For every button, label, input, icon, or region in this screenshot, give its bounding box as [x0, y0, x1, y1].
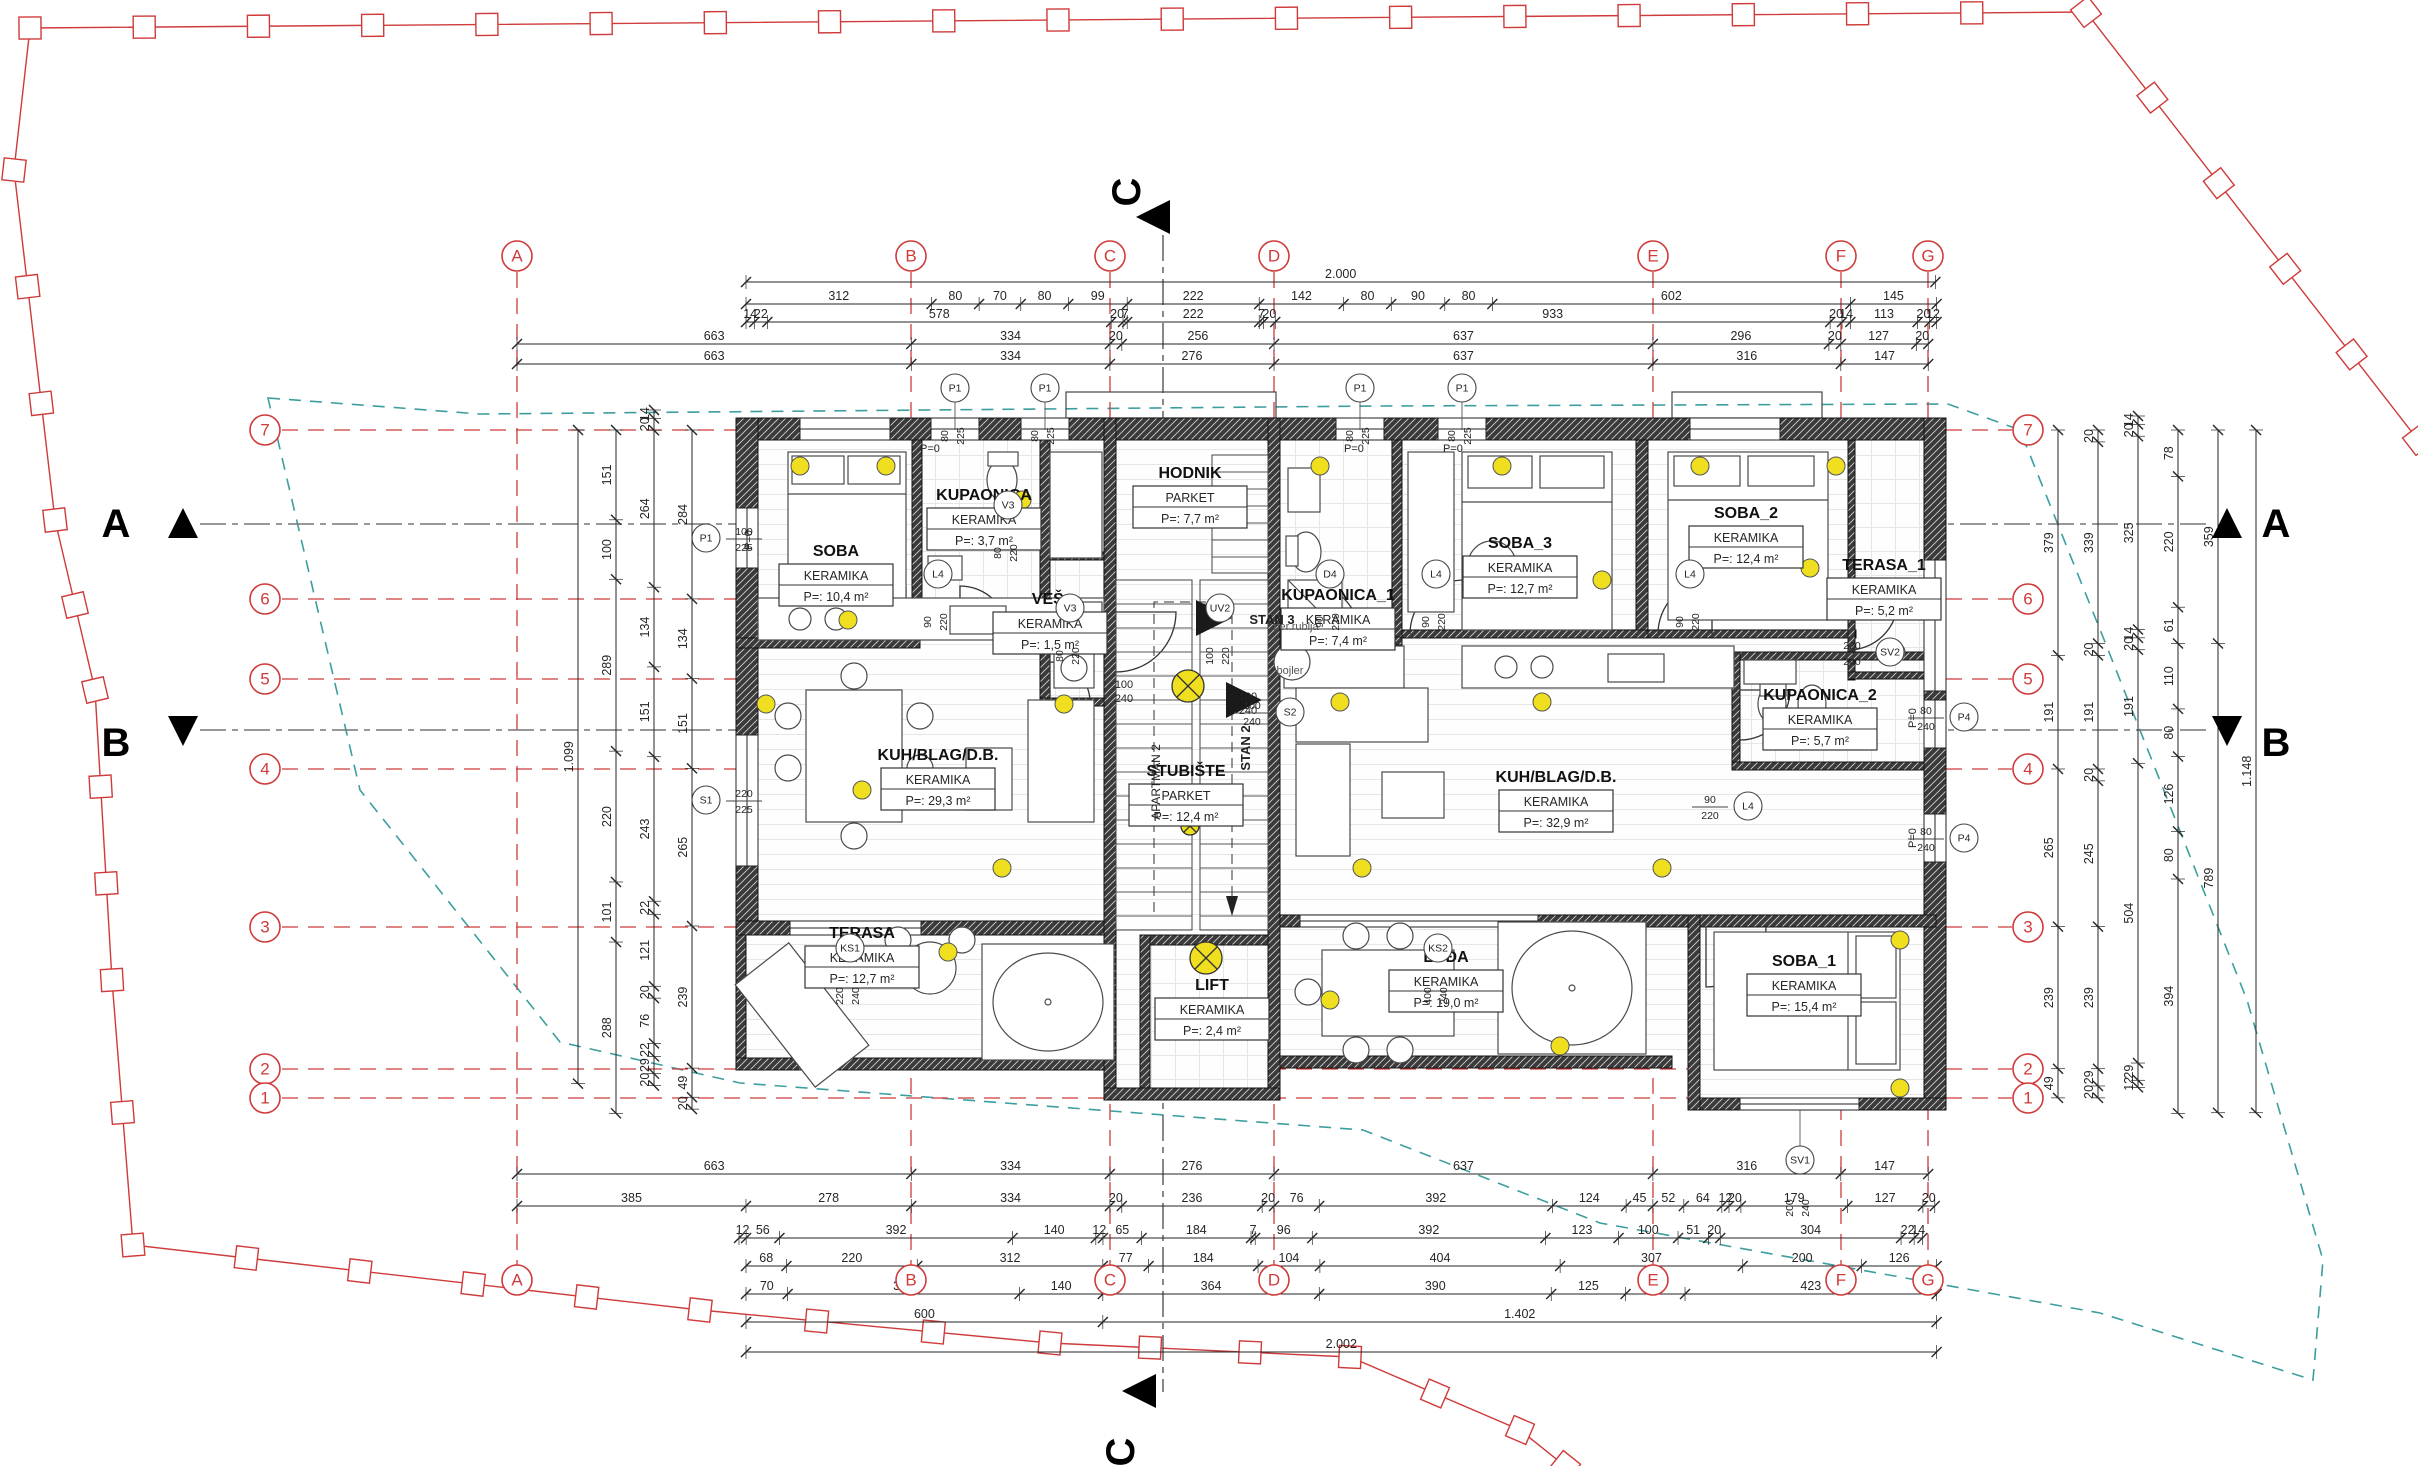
dim-value: 7	[1250, 1223, 1257, 1237]
dim-value: 76	[638, 1014, 652, 1028]
room-label-kupaonica-2: KUPAONICA_2KERAMIKAP=: 5,7 m²	[1763, 687, 1877, 750]
tag-dim: 220	[834, 987, 846, 1005]
room-finish: KERAMIKA	[906, 773, 971, 787]
dim-value: 392	[1425, 1191, 1446, 1205]
dim-value: 334	[1000, 1159, 1021, 1173]
grid-marker-label: A	[511, 247, 523, 266]
dim-value: 578	[929, 307, 950, 321]
furniture-item	[1387, 923, 1413, 949]
room-label-terasa-1: TERASA_1KERAMIKAP=: 5,2 m²	[1827, 557, 1941, 620]
fence-post	[461, 1272, 485, 1296]
dim-value: 423	[1800, 1279, 1821, 1293]
ceiling-light	[993, 859, 1011, 877]
dim-value: 334	[1000, 1191, 1021, 1205]
grid-marker-label: 1	[2023, 1089, 2032, 1108]
tag-dim: 225	[1462, 427, 1474, 445]
dim-value: 104	[1279, 1251, 1300, 1265]
dim-value: 20	[1922, 1191, 1936, 1205]
dim-value: 179	[1784, 1191, 1805, 1205]
tag-dim: 240	[1917, 842, 1935, 854]
grid-marker-7: 7	[250, 415, 280, 445]
furniture-item	[1387, 1037, 1413, 1063]
grid-marker-3: 3	[250, 912, 280, 942]
dim-value: 126	[2162, 783, 2176, 804]
tag-dim: 80	[1029, 430, 1041, 442]
dim-value: 325	[2122, 522, 2136, 543]
dim-value: 602	[1661, 289, 1682, 303]
grid-marker-label: 5	[2023, 670, 2032, 689]
dim-value: 80	[1361, 289, 1375, 303]
dim-value: 312	[1000, 1251, 1021, 1265]
dim-value: 339	[2082, 532, 2096, 553]
dim-value: 296	[1730, 329, 1751, 343]
tag-dim: 225	[1045, 427, 1057, 445]
dim-value: 77	[1119, 1251, 1133, 1265]
tag-id: SV2	[1880, 647, 1900, 659]
furniture-item	[988, 452, 1018, 466]
cross-lamp	[1190, 942, 1222, 974]
tag-id: KS1	[840, 943, 860, 955]
tag-id: L4	[932, 569, 944, 581]
grid-marker-label: C	[1104, 1271, 1116, 1290]
grid-marker-label: F	[1836, 1271, 1846, 1290]
tag-id: UV2	[1210, 603, 1231, 615]
tag-dim: 225	[955, 427, 967, 445]
fence-post	[15, 274, 39, 298]
grid-marker-label: E	[1647, 1271, 1658, 1290]
dim-value: 663	[704, 349, 725, 363]
dim-value: 80	[1462, 289, 1476, 303]
dim-value: 933	[1542, 307, 1563, 321]
grid-marker-label: 7	[2023, 421, 2032, 440]
fence-post	[1138, 1336, 1161, 1359]
dim-value: 284	[676, 504, 690, 525]
tag-dim: 100	[1243, 700, 1261, 712]
tag-dim: 80	[1920, 705, 1932, 717]
grid-marker-2: 2	[2013, 1054, 2043, 1084]
tag-dim: 220	[735, 788, 753, 800]
wall	[1636, 440, 1648, 638]
tag-dim: 220	[1070, 647, 1082, 665]
dim-value: 2.000	[1325, 267, 1356, 281]
dim-value: 127	[1868, 329, 1889, 343]
dim-value: 20	[1261, 1191, 1275, 1205]
ceiling-light	[1331, 693, 1349, 711]
grid-marker-F: F	[1826, 1265, 1856, 1295]
ceiling-light	[1493, 457, 1511, 475]
ceiling-light	[1353, 859, 1371, 877]
dim-value: 20	[2122, 637, 2136, 651]
cross-lamp	[1172, 670, 1204, 702]
room-name: KUH/BLAG/D.B.	[878, 747, 999, 764]
tag-dim: 80	[1446, 430, 1458, 442]
wall	[1104, 1088, 1280, 1100]
tag-id: L4	[1742, 801, 1754, 813]
room-finish: KERAMIKA	[1852, 583, 1917, 597]
tag-dim: 225	[735, 542, 753, 554]
ceiling-light	[1801, 559, 1819, 577]
room-area: P=: 12,7 m²	[830, 972, 895, 986]
tag-dim: 220	[1843, 640, 1861, 652]
dim-value: 20	[638, 417, 652, 431]
tag-dim: 80	[1344, 430, 1356, 442]
dim-value: 140	[1051, 1279, 1072, 1293]
ceiling-light	[1827, 457, 1845, 475]
dim-value: 100	[1638, 1223, 1659, 1237]
dim-value: 385	[621, 1191, 642, 1205]
dim-value: 151	[600, 464, 614, 485]
window	[736, 735, 758, 866]
fence-post	[688, 1298, 712, 1322]
tag-id: P1	[1354, 383, 1367, 395]
grid-marker-label: 5	[260, 670, 269, 689]
wall	[1848, 672, 1924, 679]
furniture-item	[1343, 1037, 1369, 1063]
room-finish: KERAMIKA	[1714, 531, 1779, 545]
furniture-item	[841, 823, 867, 849]
room-finish: KERAMIKA	[1788, 713, 1853, 727]
ceiling-light	[939, 943, 957, 961]
dim-value: 145	[1883, 289, 1904, 303]
grid-marker-label: G	[1921, 1271, 1934, 1290]
furniture-item	[1296, 688, 1428, 742]
annotation-text: 100	[1115, 679, 1133, 691]
furniture-item	[1045, 999, 1051, 1005]
room-area: P=: 29,3 m²	[906, 794, 971, 808]
grid-marker-A: A	[502, 1265, 532, 1295]
tag-dim: 80	[939, 430, 951, 442]
ceiling-light	[1891, 931, 1909, 949]
dim-value: 80	[2162, 726, 2176, 740]
grid-marker-label: A	[511, 1271, 523, 1290]
dim-value: 142	[1291, 289, 1312, 303]
furniture-item	[789, 608, 811, 630]
fence-post	[19, 17, 41, 39]
tag-dim: 90	[922, 616, 934, 628]
room-area: P=: 7,7 m²	[1161, 512, 1219, 526]
dim-value: 49	[2042, 1076, 2056, 1090]
dim-value: 334	[1000, 349, 1021, 363]
dim-value: 191	[2122, 696, 2136, 717]
grid-marker-B: B	[896, 241, 926, 271]
dim-value: 101	[600, 902, 614, 923]
grid-marker-label: 2	[2023, 1060, 2032, 1079]
annotation-text: P=0	[920, 443, 940, 455]
grid-marker-G: G	[1913, 1265, 1943, 1295]
dim-value: 126	[1889, 1251, 1910, 1265]
grid-marker-3: 3	[2013, 912, 2043, 942]
dim-value: 14	[1911, 1223, 1925, 1237]
grid-marker-label: 4	[260, 760, 269, 779]
tag-dim: 220	[1690, 613, 1702, 631]
dim-value: 64	[1696, 1191, 1710, 1205]
tag-id: P1	[1039, 383, 1052, 395]
ceiling-light	[877, 457, 895, 475]
fence-post	[100, 968, 123, 991]
room-name: HODNIK	[1158, 465, 1222, 482]
dim-value: 52	[1661, 1191, 1675, 1205]
dim-value: 256	[1188, 329, 1209, 343]
tag-dim: 90	[1420, 616, 1432, 628]
room-finish: KERAMIKA	[804, 569, 869, 583]
tag-dim: 90	[1674, 616, 1686, 628]
dim-value: 29	[2082, 1070, 2096, 1084]
dim-value: 20	[1915, 329, 1929, 343]
section-letter-B-right: B	[2262, 721, 2291, 765]
dim-value: 364	[1201, 1279, 1222, 1293]
room-finish: PARKET	[1165, 491, 1214, 505]
room-area: P=: 2,4 m²	[1183, 1024, 1241, 1038]
dim-value: 1.099	[562, 741, 576, 772]
tag-id: SV1	[1790, 1155, 1810, 1167]
tag-dim: 90	[1314, 616, 1326, 628]
grid-marker-label: 4	[2023, 760, 2032, 779]
grid-marker-A: A	[502, 241, 532, 271]
furniture-item	[1408, 452, 1454, 612]
furniture-item	[775, 703, 801, 729]
grid-marker-C: C	[1095, 1265, 1125, 1295]
dim-value: 637	[1453, 1159, 1474, 1173]
dim-value: 22	[638, 1043, 652, 1057]
room-name: TERASA_1	[1842, 557, 1926, 574]
furniture-item	[1296, 744, 1350, 856]
section-letter-B-left: B	[102, 721, 131, 765]
dim-value: 7	[1122, 307, 1129, 321]
tag-id: P1	[949, 383, 962, 395]
dim-value: 20	[1262, 307, 1276, 321]
furniture-item	[1050, 452, 1102, 558]
dim-value: 100	[600, 539, 614, 560]
fence-post	[476, 13, 498, 35]
grid-marker-label: 3	[2023, 918, 2032, 937]
room-name: SOBA_2	[1714, 505, 1778, 522]
dim-value: 20	[2082, 768, 2096, 782]
dim-value: 265	[676, 837, 690, 858]
room-area: P=: 12,4 m²	[1154, 810, 1219, 824]
tag-dim: 90	[1704, 794, 1716, 806]
furniture-item	[1748, 456, 1814, 486]
dim-value: 22	[754, 307, 768, 321]
furniture-item	[1856, 936, 1896, 998]
dim-value: 80	[948, 289, 962, 303]
grid-marker-4: 4	[2013, 754, 2043, 784]
tag-dim: 80	[1920, 826, 1932, 838]
tag-dim: 240	[850, 987, 862, 1005]
fence-post	[247, 15, 269, 37]
dim-value: 22	[638, 901, 652, 915]
section-letter-A-right: A	[2262, 502, 2291, 546]
fence-post	[818, 11, 840, 33]
fence-post	[1047, 9, 1069, 31]
furniture-item	[841, 663, 867, 689]
wall	[1040, 440, 1050, 706]
ceiling-light	[853, 781, 871, 799]
tag-id: P1	[1456, 383, 1469, 395]
ceiling-light	[839, 611, 857, 629]
dim-value: 404	[1430, 1251, 1451, 1265]
fence-post	[29, 391, 53, 415]
dim-value: 236	[1182, 1191, 1203, 1205]
room-name: SOBA	[813, 543, 860, 560]
ceiling-light	[1593, 571, 1611, 589]
fence-post	[362, 14, 384, 36]
dim-value: 20	[638, 1073, 652, 1087]
dim-value: 125	[1578, 1279, 1599, 1293]
fence-post	[43, 508, 67, 532]
tag-dim: 240	[1438, 987, 1450, 1005]
dim-value: 20	[676, 1096, 690, 1110]
grid-marker-label: 6	[2023, 590, 2032, 609]
dim-value: 96	[1277, 1223, 1291, 1237]
room-name: SOBA_1	[1772, 953, 1836, 970]
furniture-item	[1028, 700, 1094, 822]
dim-value: 68	[759, 1251, 773, 1265]
dim-value: 316	[1736, 349, 1757, 363]
furniture-item	[1608, 654, 1664, 682]
ceiling-light	[791, 457, 809, 475]
tag-dim: 80	[992, 547, 1004, 559]
dim-value: 789	[2202, 868, 2216, 889]
dim-value: 379	[2042, 532, 2056, 553]
dim-value: 61	[2162, 618, 2176, 632]
furniture-item	[1382, 772, 1444, 818]
dim-value: 663	[704, 329, 725, 343]
dim-value: 20	[2082, 429, 2096, 443]
wall	[1648, 630, 1856, 638]
dim-value: 289	[600, 655, 614, 676]
grid-marker-label: B	[905, 1271, 916, 1290]
fence-post	[89, 775, 112, 798]
window	[1740, 1098, 1859, 1110]
dim-value: 20	[2082, 642, 2096, 656]
dim-value: 14	[1839, 307, 1853, 321]
fence-post	[1275, 7, 1297, 29]
furniture-item	[1343, 923, 1369, 949]
grid-marker-E: E	[1638, 241, 1668, 271]
dim-value: 78	[2162, 446, 2176, 460]
dim-value: 80	[1038, 289, 1052, 303]
room-area: P=: 12,7 m²	[1488, 582, 1553, 596]
grid-marker-1: 1	[2013, 1083, 2043, 1113]
dim-value: 147	[1874, 349, 1895, 363]
grid-marker-D: D	[1259, 241, 1289, 271]
section-letter-A-left: A	[102, 502, 131, 546]
grid-marker-G: G	[1913, 241, 1943, 271]
fence-post	[933, 10, 955, 32]
wall	[1268, 418, 1280, 1100]
wall	[736, 935, 746, 1070]
dim-value: 20	[638, 985, 652, 999]
dim-value: 390	[1425, 1279, 1446, 1293]
dim-value: 70	[760, 1279, 774, 1293]
fence-post	[133, 16, 155, 38]
dim-value: 70	[993, 289, 1007, 303]
furniture-item	[775, 755, 801, 781]
dim-value: 56	[756, 1223, 770, 1237]
furniture-item	[907, 703, 933, 729]
dim-value: 334	[1000, 329, 1021, 343]
dim-value: 20	[2122, 423, 2136, 437]
grid-marker-label: F	[1836, 247, 1846, 266]
fence-post	[704, 12, 726, 34]
dim-value: 316	[1736, 1159, 1757, 1173]
dim-value: 184	[1193, 1251, 1214, 1265]
dim-value: 265	[2042, 837, 2056, 858]
tag-dim: 220	[1701, 810, 1719, 822]
room-label-kupaonica: KUPAONICAKERAMIKAP=: 3,7 m²	[927, 487, 1041, 550]
fence-post	[1038, 1331, 1062, 1355]
dim-value: 239	[676, 987, 690, 1008]
dim-value: 220	[2162, 531, 2176, 552]
room-finish: PARKET	[1161, 789, 1210, 803]
annotation-text: P=0	[1443, 443, 1463, 455]
room-finish: KERAMIKA	[1414, 975, 1479, 989]
dim-value: 123	[1572, 1223, 1593, 1237]
furniture-item	[1288, 468, 1320, 512]
dim-value: 147	[1874, 1159, 1895, 1173]
tag-id: S2	[1284, 707, 1297, 719]
furniture-item	[1531, 656, 1553, 678]
fence-post	[234, 1246, 258, 1270]
room-area: P=: 5,2 m²	[1855, 604, 1913, 618]
dim-value: 307	[1641, 1251, 1662, 1265]
wall	[1688, 915, 1700, 1110]
room-name: KUH/BLAG/D.B.	[1496, 769, 1617, 786]
room-area: P=: 32,9 m²	[1524, 816, 1589, 830]
grid-marker-C: C	[1095, 241, 1125, 271]
dim-value: 220	[841, 1251, 862, 1265]
tag-dim: 240	[1243, 716, 1261, 728]
room-name: KUPAONICA_1	[1281, 587, 1395, 604]
dim-value: 1.402	[1504, 1307, 1535, 1321]
grid-marker-F: F	[1826, 241, 1856, 271]
furniture-item	[1295, 979, 1321, 1005]
dim-value: 245	[2082, 843, 2096, 864]
fence-post	[95, 872, 118, 895]
room-area: P=: 7,4 m²	[1309, 634, 1367, 648]
furniture-item	[1540, 456, 1604, 488]
fence-post	[82, 677, 108, 703]
section-letter-C-top: C	[1105, 178, 1149, 207]
annotation-text: 240	[1115, 693, 1133, 705]
room-label-kuh-blag-d-b-: KUH/BLAG/D.B.KERAMIKAP=: 29,3 m²	[878, 747, 999, 810]
tag-dim: 100	[735, 526, 753, 538]
tag-dim: 80	[1054, 650, 1066, 662]
dim-value: 12	[1926, 307, 1940, 321]
annotation-text: APARTMAN 2	[1149, 744, 1163, 820]
grid-marker-label: 3	[260, 918, 269, 937]
tag-dim: 240	[1843, 656, 1861, 668]
dim-value: 140	[1044, 1223, 1065, 1237]
dim-value: 243	[638, 818, 652, 839]
dim-value: 12	[1092, 1223, 1106, 1237]
grid-marker-4: 4	[250, 754, 280, 784]
fence-post	[111, 1101, 135, 1125]
wall	[1280, 1056, 1672, 1068]
dim-value: 76	[1290, 1191, 1304, 1205]
fence-post	[1618, 4, 1640, 26]
room-floor	[1855, 440, 1924, 672]
dim-value: 134	[676, 628, 690, 649]
room-finish: KERAMIKA	[1772, 979, 1837, 993]
dim-value: 637	[1453, 329, 1474, 343]
grid-marker-label: 1	[260, 1089, 269, 1108]
dim-value: 239	[2082, 987, 2096, 1008]
furniture-item	[1856, 1002, 1896, 1064]
fence-post	[574, 1285, 598, 1309]
dim-value: 134	[638, 617, 652, 638]
dim-value: 29	[2122, 1065, 2136, 1079]
